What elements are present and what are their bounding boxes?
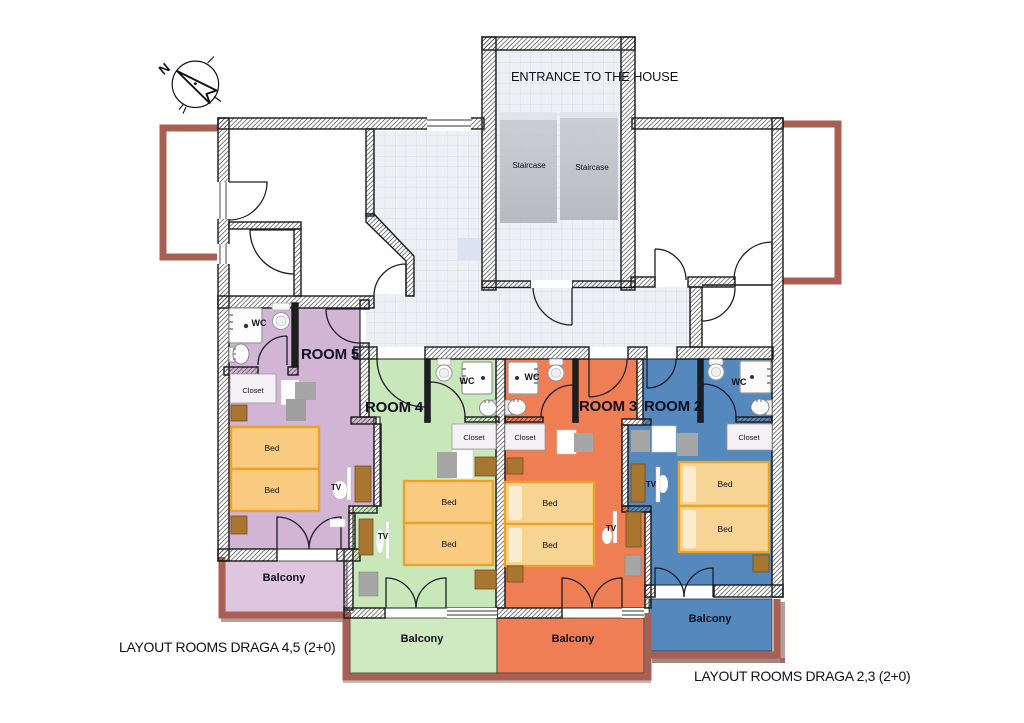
svg-text:TV: TV (331, 483, 342, 492)
svg-text:Closet: Closet (514, 433, 536, 442)
svg-text:ROOM 5: ROOM 5 (301, 346, 359, 363)
svg-text:TV: TV (606, 524, 617, 533)
svg-text:Closet: Closet (463, 433, 485, 442)
svg-text:Closet: Closet (738, 433, 760, 442)
svg-text:Closet: Closet (242, 386, 264, 395)
svg-text:TV: TV (378, 532, 389, 541)
svg-text:WC: WC (732, 377, 747, 387)
svg-text:Bed: Bed (717, 479, 732, 489)
svg-text:Bed: Bed (542, 540, 557, 550)
svg-text:Staircase: Staircase (512, 161, 546, 170)
svg-text:Bed: Bed (264, 443, 279, 453)
svg-text:ROOM 3: ROOM 3 (579, 398, 637, 415)
svg-text:WC: WC (252, 318, 267, 328)
svg-text:Bed: Bed (542, 498, 557, 508)
svg-text:Bed: Bed (441, 497, 456, 507)
svg-text:Balcony: Balcony (552, 633, 596, 645)
svg-text:Bed: Bed (264, 485, 279, 495)
svg-text:Balcony: Balcony (263, 572, 307, 584)
svg-text:ENTRANCE TO THE HOUSE: ENTRANCE TO THE HOUSE (511, 69, 678, 84)
svg-text:LAYOUT ROOMS DRAGA 2,3 (2+0): LAYOUT ROOMS DRAGA 2,3 (2+0) (694, 668, 910, 684)
svg-text:TV: TV (646, 480, 657, 489)
svg-text:WC: WC (525, 372, 540, 382)
svg-text:Bed: Bed (441, 539, 456, 549)
svg-text:ROOM 2: ROOM 2 (644, 398, 702, 415)
svg-text:Balcony: Balcony (401, 633, 445, 645)
svg-text:Balcony: Balcony (689, 613, 733, 625)
svg-text:ROOM 4: ROOM 4 (365, 399, 424, 416)
svg-text:WC: WC (460, 376, 475, 386)
svg-text:LAYOUT ROOMS DRAGA 4,5 (2+0): LAYOUT ROOMS DRAGA 4,5 (2+0) (119, 639, 335, 655)
svg-text:Bed: Bed (717, 524, 732, 534)
svg-text:Staircase: Staircase (575, 163, 609, 172)
